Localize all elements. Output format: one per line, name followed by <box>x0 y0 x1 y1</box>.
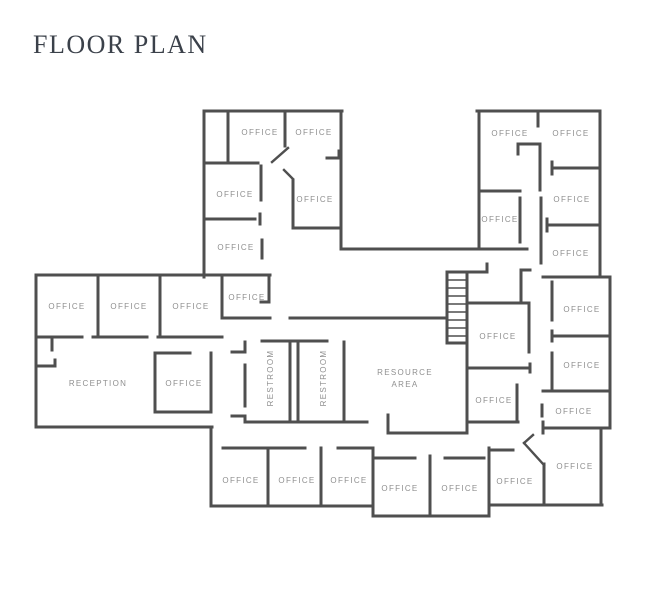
room-label-restroom-1: RESTROOM <box>266 350 275 407</box>
room-label-office-s-6: OFFICE <box>496 477 533 486</box>
room-label-office-nw-3: OFFICE <box>216 190 253 199</box>
floor-plan: OFFICEOFFICEOFFICEOFFICEOFFICEOFFICEOFFI… <box>0 0 646 588</box>
room-label-office-w-3: OFFICE <box>172 302 209 311</box>
room-label-office-center-left: OFFICE <box>228 293 265 302</box>
door-swing <box>284 170 293 179</box>
door-swing <box>272 148 288 162</box>
floor-plan-canvas: OFFICEOFFICEOFFICEOFFICEOFFICEOFFICEOFFI… <box>0 0 646 588</box>
door-swing <box>524 443 544 465</box>
room-label-office-s-2: OFFICE <box>278 476 315 485</box>
room-label-office-w-1: OFFICE <box>48 302 85 311</box>
room-label-office-ne-1: OFFICE <box>491 129 528 138</box>
room-label-restroom-2: RESTROOM <box>319 350 328 407</box>
room-label-office-s-1: OFFICE <box>222 476 259 485</box>
room-label-office-reception: OFFICE <box>165 379 202 388</box>
room-label-office-ne-5: OFFICE <box>552 249 589 258</box>
room-label-office-e-1: OFFICE <box>563 305 600 314</box>
room-label-resource-area-line2: AREA <box>392 380 419 389</box>
room-label-office-s-4: OFFICE <box>381 484 418 493</box>
room-label-office-e-3: OFFICE <box>555 407 592 416</box>
room-label-office-e-4: OFFICE <box>556 462 593 471</box>
room-label-reception: RECEPTION <box>69 379 127 388</box>
room-label-resource-area-line1: RESOURCE <box>377 368 433 377</box>
room-label-office-w-2: OFFICE <box>110 302 147 311</box>
room-label-office-ne-3: OFFICE <box>553 195 590 204</box>
room-label-office-s-3: OFFICE <box>330 476 367 485</box>
room-label-office-ne-4: OFFICE <box>481 215 518 224</box>
room-label-office-nw-1: OFFICE <box>241 128 278 137</box>
room-label-office-nw-2: OFFICE <box>295 128 332 137</box>
room-label-office-ne-2: OFFICE <box>552 129 589 138</box>
room-label-office-e-2: OFFICE <box>563 361 600 370</box>
room-label-office-nw-4: OFFICE <box>296 195 333 204</box>
door-swing <box>524 435 533 443</box>
room-label-office-center-2: OFFICE <box>475 396 512 405</box>
room-label-office-s-5: OFFICE <box>441 484 478 493</box>
room-label-office-nw-5: OFFICE <box>217 243 254 252</box>
room-label-office-center-1: OFFICE <box>479 332 516 341</box>
